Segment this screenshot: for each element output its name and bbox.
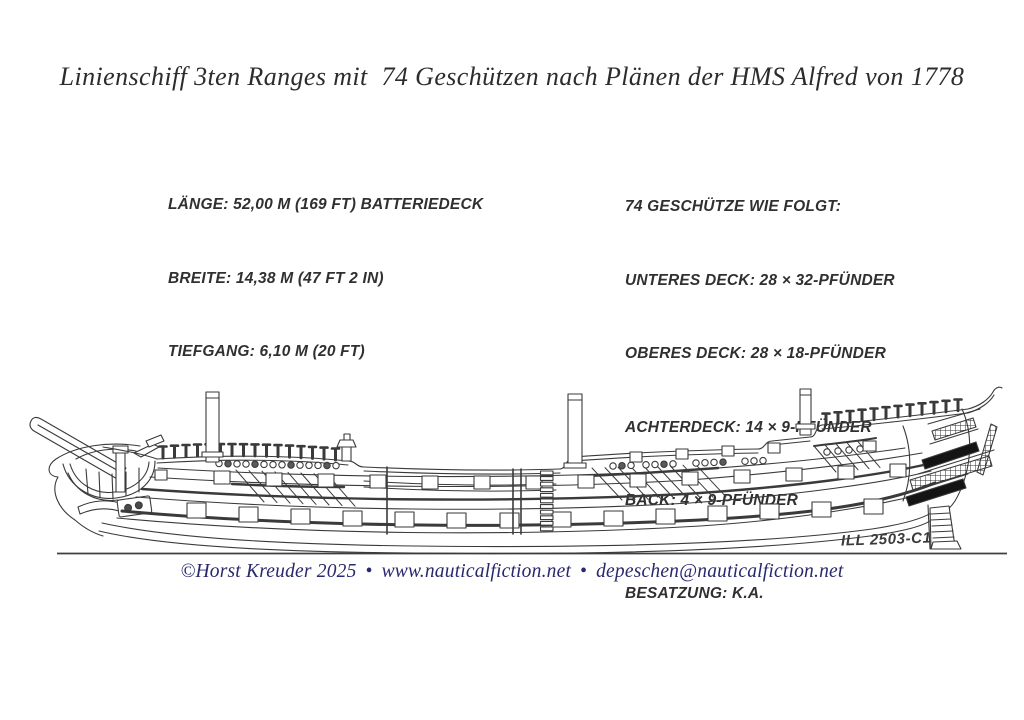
footer: ©Horst Kreuder 2025•www.nauticalfiction.… bbox=[0, 561, 1024, 583]
bow-and-bowsprit bbox=[30, 417, 164, 536]
copyright-text: ©Horst Kreuder 2025 bbox=[180, 561, 356, 582]
ship-illustration bbox=[0, 0, 1024, 720]
bullet-separator: • bbox=[366, 561, 373, 583]
bullet-separator: • bbox=[580, 561, 587, 583]
illustration-id-label: ILL 2503-C1 bbox=[841, 529, 932, 549]
website-text: www.nauticalfiction.net bbox=[382, 561, 571, 582]
stern-gallery bbox=[903, 409, 997, 549]
rudder bbox=[928, 505, 961, 549]
illustration-plate: Linienschiff 3ten Ranges mit 74 Geschütz… bbox=[0, 0, 1024, 720]
email-text: depeschen@nauticalfiction.net bbox=[596, 561, 843, 582]
